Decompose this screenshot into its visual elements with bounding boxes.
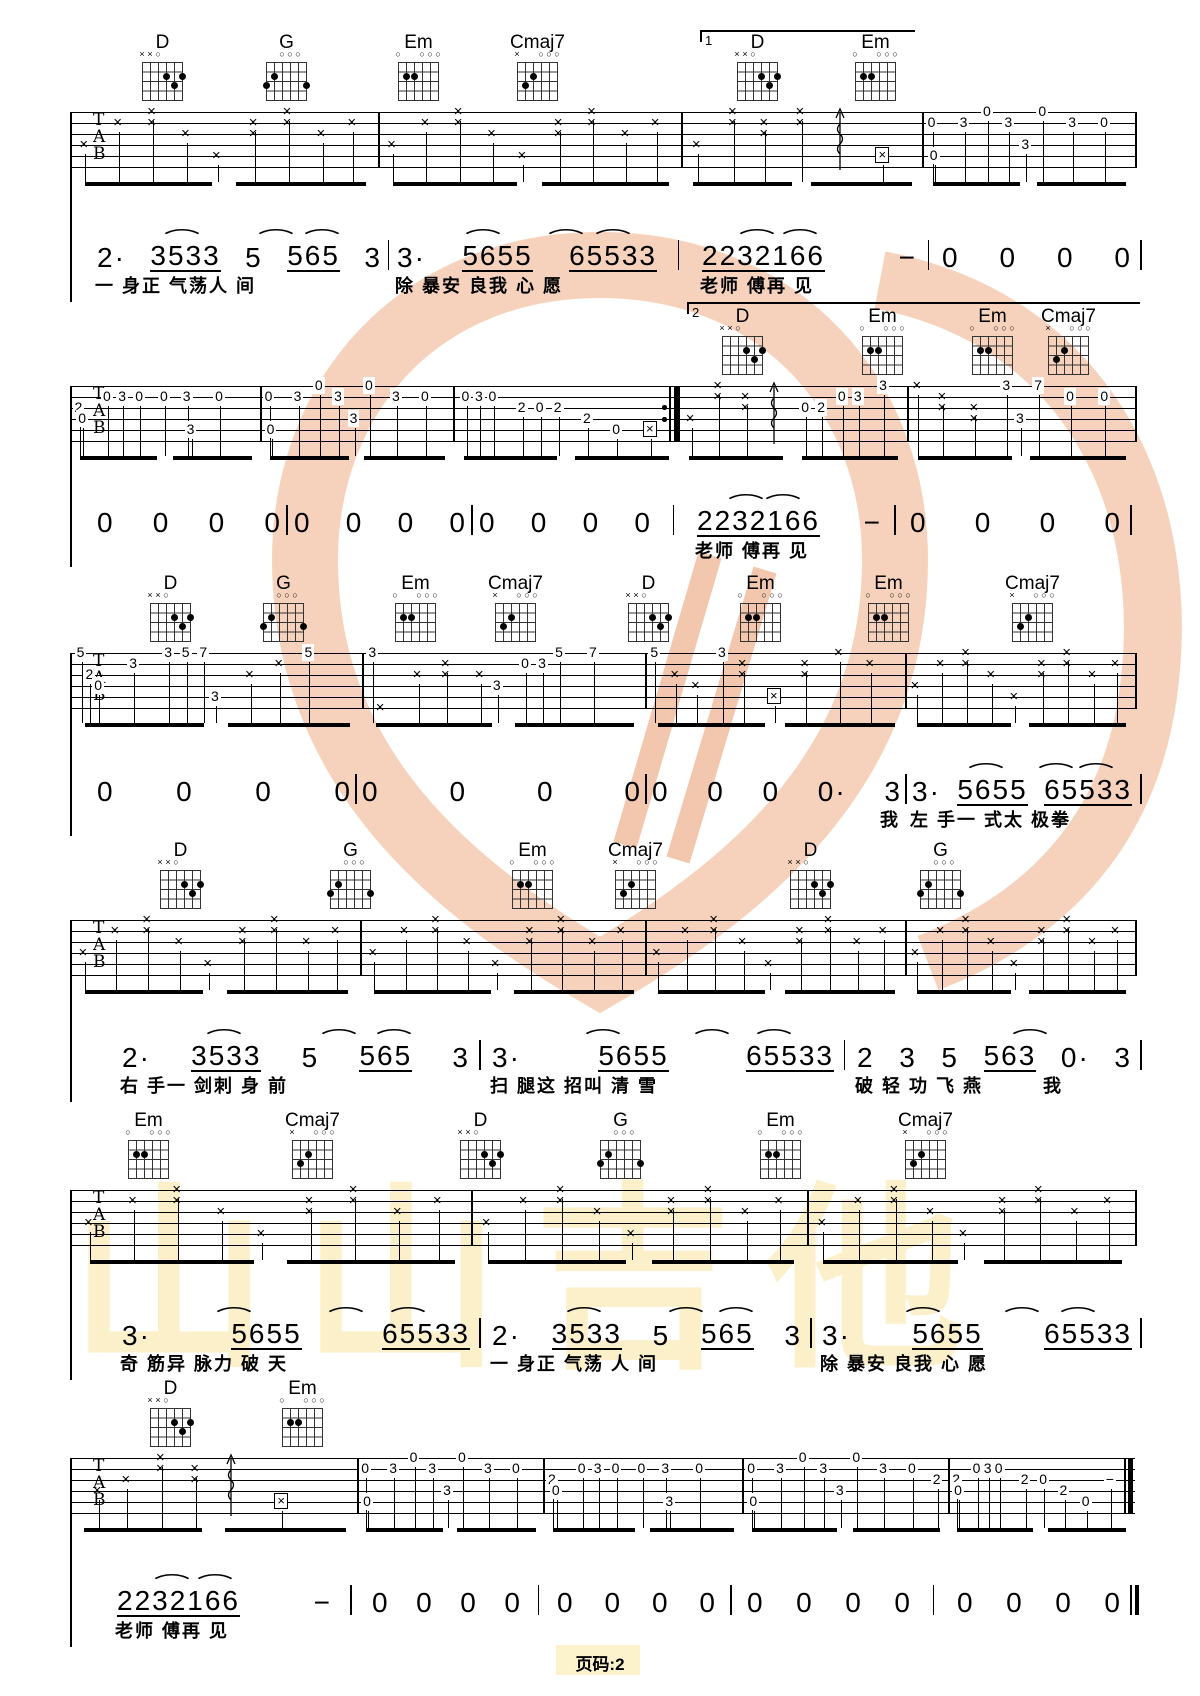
strum-x-mark: × [349, 1193, 358, 1209]
chord-grid [128, 1140, 169, 1179]
stem [594, 662, 595, 723]
chord-open-mute-marker: ○ [932, 857, 940, 867]
chord-finger-dot [867, 347, 874, 354]
chord-finger-dot [305, 1151, 312, 1158]
stem [1004, 1221, 1005, 1260]
stem [884, 395, 885, 456]
chord-grid [512, 870, 553, 909]
jianpu-group: 3 [1114, 1043, 1132, 1072]
stem [871, 673, 872, 723]
stem [942, 673, 943, 723]
stem [988, 121, 989, 182]
stem [244, 951, 245, 990]
fret-number: 2 [931, 1471, 943, 1488]
jianpu-group: 2· [97, 243, 126, 272]
jianpu-barline [933, 1585, 935, 1615]
stem [806, 684, 807, 723]
beam [917, 990, 1011, 994]
chord-open-mute-marker: ○ [1048, 590, 1056, 600]
beam [1029, 990, 1126, 994]
fret-number: 0 [636, 1460, 648, 1477]
barline [471, 1190, 473, 1246]
jianpu-measure: 0000 [370, 1583, 524, 1617]
strum-x-mark: × [1111, 923, 1120, 939]
stem [917, 962, 918, 990]
beam [393, 182, 517, 186]
jianpu-group: 0 [910, 508, 928, 537]
stem [299, 406, 300, 456]
strum-x-mark: × [626, 1226, 635, 1242]
stem [397, 406, 398, 456]
stem [1015, 973, 1016, 990]
chord-open-mute-marker: ○ [320, 1127, 328, 1137]
jianpu-barline [645, 774, 647, 804]
stem [1026, 154, 1027, 182]
volta-bracket-line [687, 302, 1140, 304]
jianpu-group: 2· [122, 1043, 151, 1072]
fret-number: 3 [127, 655, 139, 672]
chord-finger-dot [525, 881, 532, 888]
stem [562, 1210, 563, 1260]
chord-finger-dot [860, 73, 867, 80]
stem [488, 1232, 489, 1260]
stem [426, 406, 427, 456]
chord-finger-dot [918, 1151, 925, 1158]
beam [658, 723, 765, 727]
jianpu-group: 0 [763, 777, 781, 806]
chord-open-mute-marker: ○ [318, 1395, 326, 1405]
fret-number: 0 [799, 399, 811, 416]
barline [807, 1190, 809, 1246]
jianpu-barline [928, 240, 930, 270]
jianpu-measure: 0000 [940, 238, 1134, 272]
stem [859, 406, 860, 456]
staff-line [70, 134, 1135, 135]
jianpu-group: 0 [346, 508, 364, 537]
stem [481, 684, 482, 723]
chord-open-mute-marker: ○ [635, 857, 643, 867]
repeat-thin-line [669, 386, 671, 442]
muted-x-box: × [643, 421, 657, 437]
fret-number: 2 [552, 399, 564, 416]
stem [896, 1210, 897, 1260]
strum-x-mark: × [113, 115, 122, 131]
stem [1015, 706, 1016, 723]
tie-arc: ⌒ [1012, 1023, 1048, 1052]
strum-x-mark: × [433, 1193, 442, 1209]
tie-arc: ⌒ [728, 488, 764, 517]
tie-arc: ⌒ [756, 1023, 792, 1052]
chord-open-mute-marker: × [1044, 323, 1052, 333]
chord-open-mute-marker: × [154, 590, 162, 600]
chord-finger-dot [1053, 356, 1060, 363]
stem [884, 1478, 885, 1528]
chord-open-mute-marker: × [154, 1395, 162, 1405]
tie-arc: ⌒ [595, 223, 631, 252]
jianpu-group: 0 [1006, 1588, 1024, 1617]
fret-number: 5 [180, 644, 192, 661]
barline [378, 112, 380, 168]
strum-x-mark: × [681, 923, 690, 939]
barline [905, 653, 907, 709]
chord-open-mute-marker: × [464, 1127, 472, 1137]
fret-number: 0 [101, 388, 113, 405]
arpeggio-arrow-icon [225, 1452, 237, 1518]
chord-open-mute-marker: ○ [1068, 323, 1076, 333]
strum-x-mark: × [79, 945, 88, 961]
fret-number: 7 [197, 644, 209, 661]
fret-number: 2 [815, 399, 827, 416]
strum-x-mark: × [1103, 1193, 1112, 1209]
chord-finger-dot [133, 1151, 140, 1158]
chord-open-mute-marker: ○ [302, 1395, 310, 1405]
chord-open-mute-marker: × [513, 49, 521, 59]
strum-x-mark: × [1034, 1193, 1043, 1209]
chord-finger-dot [303, 82, 310, 89]
chord-finger-dot [977, 347, 984, 354]
beam [236, 182, 365, 186]
strum-x-mark: × [738, 667, 747, 683]
chord-finger-dot [268, 614, 275, 621]
stem [517, 1478, 518, 1528]
jianpu-final-thin [1130, 1585, 1132, 1615]
strum-x-mark: × [249, 126, 258, 142]
strum-x-mark: × [865, 656, 874, 672]
fret-number: 0 [1098, 388, 1110, 405]
jianpu-group: 3· [822, 1321, 851, 1350]
chord-finger-dot [411, 73, 418, 80]
fret-number: 0 [487, 388, 499, 405]
stem [374, 962, 375, 990]
stem [467, 406, 468, 456]
fret-number: 3 [426, 1460, 438, 1477]
fret-number: 0 [313, 377, 325, 394]
stem [187, 143, 188, 182]
strum-x-mark: × [93, 1483, 102, 1499]
chord-finger-dot [179, 73, 186, 80]
strum-x-mark: × [431, 923, 440, 939]
chord-finger-dot [766, 82, 773, 89]
stem [992, 951, 993, 990]
beam [553, 1528, 635, 1532]
chord-open-mute-marker: ○ [278, 49, 286, 59]
chord-finger-dot [910, 1160, 917, 1167]
strum-x-mark: × [172, 1193, 181, 1209]
stem [1068, 940, 1069, 990]
strum-x-mark: × [961, 923, 970, 939]
fret-number: 3 [390, 388, 402, 405]
lyric-line: 破 轻 功 飞 燕 我 [855, 1072, 1130, 1098]
barline [357, 1458, 359, 1514]
stem [599, 1478, 600, 1528]
tab-clef-letter: B [93, 145, 106, 163]
jianpu-group: 0 [1057, 243, 1075, 272]
fret-number: 0 [359, 1460, 371, 1477]
jianpu-group: 0 [634, 508, 652, 537]
chord-finger-dot [637, 1160, 644, 1167]
stem [626, 143, 627, 182]
tie-arc: ⌒ [304, 223, 340, 252]
fret-number: 5 [302, 644, 314, 661]
stem [108, 406, 109, 456]
stem [90, 1232, 91, 1260]
fret-number: 0 [836, 388, 848, 405]
fret-number: 7 [587, 644, 599, 661]
chord-grid [972, 336, 1013, 375]
chord-grid [160, 870, 201, 909]
stem [700, 1478, 701, 1528]
barline [645, 920, 647, 976]
barline [922, 112, 924, 168]
jianpu-group: 0 [707, 777, 725, 806]
beam [853, 1528, 940, 1532]
chord-open-mute-marker: × [288, 1127, 296, 1137]
chord-finger-dot [403, 73, 410, 80]
barline [1135, 1190, 1137, 1246]
chord-open-mute-marker: ○ [434, 49, 442, 59]
chord-open-mute-marker: × [146, 49, 154, 59]
jianpu-group: 0 [624, 777, 642, 806]
stem [744, 684, 745, 723]
chord-open-mute-marker: × [786, 857, 794, 867]
strum-x-mark: × [190, 1472, 199, 1488]
fret-number: 0 [993, 1460, 1005, 1477]
tie-arc: ⌒ [465, 223, 501, 252]
stem [560, 143, 561, 182]
strum-x-mark: × [958, 1226, 967, 1242]
jianpu-barline [471, 505, 473, 535]
stem [824, 1478, 825, 1528]
fret-number: 0 [460, 388, 472, 405]
stem [222, 1221, 223, 1260]
beam [785, 990, 894, 994]
chord-finger-dot [1017, 623, 1024, 630]
stem [723, 662, 724, 723]
chord-open-mute-marker: ○ [1008, 323, 1016, 333]
chord-open-mute-marker: ○ [472, 1127, 480, 1137]
strum-x-mark: × [376, 700, 385, 716]
jianpu-group: 3 [884, 777, 902, 806]
jianpu-group: 0 [942, 243, 960, 272]
stem [594, 951, 595, 990]
strum-x-mark: × [651, 115, 660, 131]
system-left-line [70, 653, 72, 836]
jianpu-group: 0 [97, 777, 115, 806]
stem [134, 673, 135, 723]
jianpu-group: 0 [153, 508, 171, 537]
footer: 页码:2 [0, 1650, 1200, 1675]
fret-number: 0 [363, 377, 375, 394]
stem [216, 706, 217, 723]
fret-number: 0 [971, 1460, 983, 1477]
stem [1117, 940, 1118, 990]
jianpu-group: 3 [364, 243, 382, 272]
chord-open-mute-marker: × [146, 1395, 154, 1405]
stem [840, 662, 841, 723]
chord-open-mute-marker: × [901, 1127, 909, 1137]
page-number-footer: 页码:2 [575, 1655, 624, 1674]
strum-x-mark: × [519, 1193, 528, 1209]
stem [765, 143, 766, 182]
strum-x-mark: × [1009, 689, 1018, 705]
strum-x-mark: × [1062, 923, 1071, 939]
tab-clef-letter: B [93, 953, 106, 971]
fret-number: 0 [610, 1460, 622, 1477]
chord-grid [737, 62, 778, 101]
chord-open-mute-marker: ○ [172, 857, 180, 867]
stem [655, 662, 656, 723]
stem [99, 1500, 100, 1528]
stem [822, 417, 823, 456]
chord-finger-dot [295, 1419, 302, 1426]
chord-grid [600, 1140, 641, 1179]
chord-open-mute-marker: ○ [350, 857, 358, 867]
beam [85, 723, 205, 727]
stem [859, 1210, 860, 1260]
stem [1111, 1489, 1112, 1528]
chord-finger-dot [408, 614, 415, 621]
strum-x-mark: × [420, 115, 429, 131]
stem [99, 695, 100, 723]
strum-x-mark: × [686, 411, 695, 427]
jianpu-group: 3 [899, 1043, 917, 1072]
strum-x-mark: × [620, 126, 629, 142]
chord-finger-dot [597, 1160, 604, 1167]
stem [493, 143, 494, 182]
jianpu-measure: 0000 [95, 772, 354, 806]
jianpu-measure: 0000 [555, 1583, 719, 1617]
chord-open-mute-marker: ○ [294, 49, 302, 59]
tie-arc: ⌒ [694, 1023, 730, 1052]
chord-finger-dot [179, 623, 186, 630]
strum-x-mark: × [926, 1204, 935, 1220]
fret-number: 3 [387, 1460, 399, 1477]
strum-x-mark: × [741, 1204, 750, 1220]
stem [196, 1489, 197, 1528]
tab-clef-letter: B [93, 419, 106, 437]
jianpu-group: 0· [1061, 1043, 1090, 1072]
staff-line [70, 1245, 1135, 1246]
fret-number: 3 [877, 1460, 889, 1477]
strum-x-mark: × [652, 945, 661, 961]
stem [85, 154, 86, 182]
beam [366, 1528, 442, 1532]
chord-open-mute-marker: ○ [882, 323, 890, 333]
fret-number: 3 [482, 1460, 494, 1477]
strum-x-mark: × [79, 137, 88, 153]
stem [559, 417, 560, 456]
fret-number: 3 [209, 688, 221, 705]
chord-open-mute-marker: × [733, 49, 741, 59]
stem [643, 1478, 644, 1528]
beam [80, 456, 158, 460]
strum-x-mark: × [692, 137, 701, 153]
chord-open-mute-marker: ○ [796, 1127, 804, 1137]
strum-x-mark: × [795, 934, 804, 950]
fret-number: 0 [850, 1449, 862, 1466]
beam [225, 1528, 346, 1532]
jianpu-barline [479, 1040, 481, 1070]
stem [632, 1243, 633, 1260]
fret-number: 2 [1058, 1482, 1070, 1499]
strum-x-mark: × [704, 1193, 713, 1209]
stem [697, 695, 698, 723]
chord-finger-dot [187, 1419, 194, 1426]
barline [1135, 653, 1137, 709]
strum-x-mark: × [878, 923, 887, 939]
beam [811, 182, 912, 186]
fret-number: 3 [162, 644, 174, 661]
staff-line [70, 123, 1135, 124]
staff-line [70, 112, 1135, 113]
fret-number: 0 [456, 1449, 468, 1466]
chord-open-mute-marker: ○ [883, 49, 891, 59]
chord-open-mute-marker: ○ [523, 590, 531, 600]
jianpu-group: 0 [604, 1588, 622, 1617]
chord-grid [628, 603, 669, 642]
strum-x-mark: × [1009, 956, 1018, 972]
fret-number: 3 [491, 677, 503, 694]
fret-number: 0 [265, 421, 277, 438]
fret-number: 3 [1014, 410, 1026, 427]
strum-x-mark: × [588, 934, 597, 950]
fret-number: 0 [576, 1460, 588, 1477]
stem [394, 1478, 395, 1528]
barline [907, 386, 909, 442]
jianpu-measure: 0000 [477, 503, 654, 537]
stem [992, 684, 993, 723]
stem [543, 673, 544, 723]
chord-finger-dot [187, 614, 194, 621]
chord-open-mute-marker: ○ [286, 49, 294, 59]
staff-line [70, 686, 1135, 687]
fret-number: 0 [1064, 388, 1076, 405]
strum-x-mark: × [824, 923, 833, 939]
fret-number: 0 [213, 388, 225, 405]
stem [437, 940, 438, 990]
jianpu-barline [1140, 1318, 1142, 1348]
stem [744, 951, 745, 990]
staff-line [70, 1190, 1135, 1191]
barline [543, 1458, 545, 1514]
stem [657, 132, 658, 182]
stem [935, 165, 936, 182]
staff-line [70, 1234, 1135, 1235]
strum-x-mark: × [667, 1204, 676, 1220]
staff-line [70, 145, 1135, 146]
barline [645, 653, 647, 709]
chord-open-mute-marker: ○ [431, 590, 439, 600]
jianpu-measure: 0000 [292, 503, 469, 537]
chord-open-mute-marker: ○ [1032, 590, 1040, 600]
chord-finger-dot [271, 73, 278, 80]
jianpu-group: 0· [818, 777, 847, 806]
chord-open-mute-marker: × [632, 590, 640, 600]
strum-x-mark: × [491, 956, 500, 972]
tie-arc: ⌒ [376, 1023, 412, 1052]
stem [531, 951, 532, 990]
strum-x-mark: × [245, 667, 254, 683]
fret-number: 3 [659, 1460, 671, 1477]
stem [719, 406, 720, 456]
strum-x-mark: × [302, 934, 311, 950]
barline [453, 386, 455, 442]
stem [123, 406, 124, 456]
chord-finger-dot [1025, 614, 1032, 621]
tie-arc: ⌒ [164, 223, 200, 252]
tie-arc: ⌒ [585, 1023, 621, 1052]
beam [85, 182, 211, 186]
